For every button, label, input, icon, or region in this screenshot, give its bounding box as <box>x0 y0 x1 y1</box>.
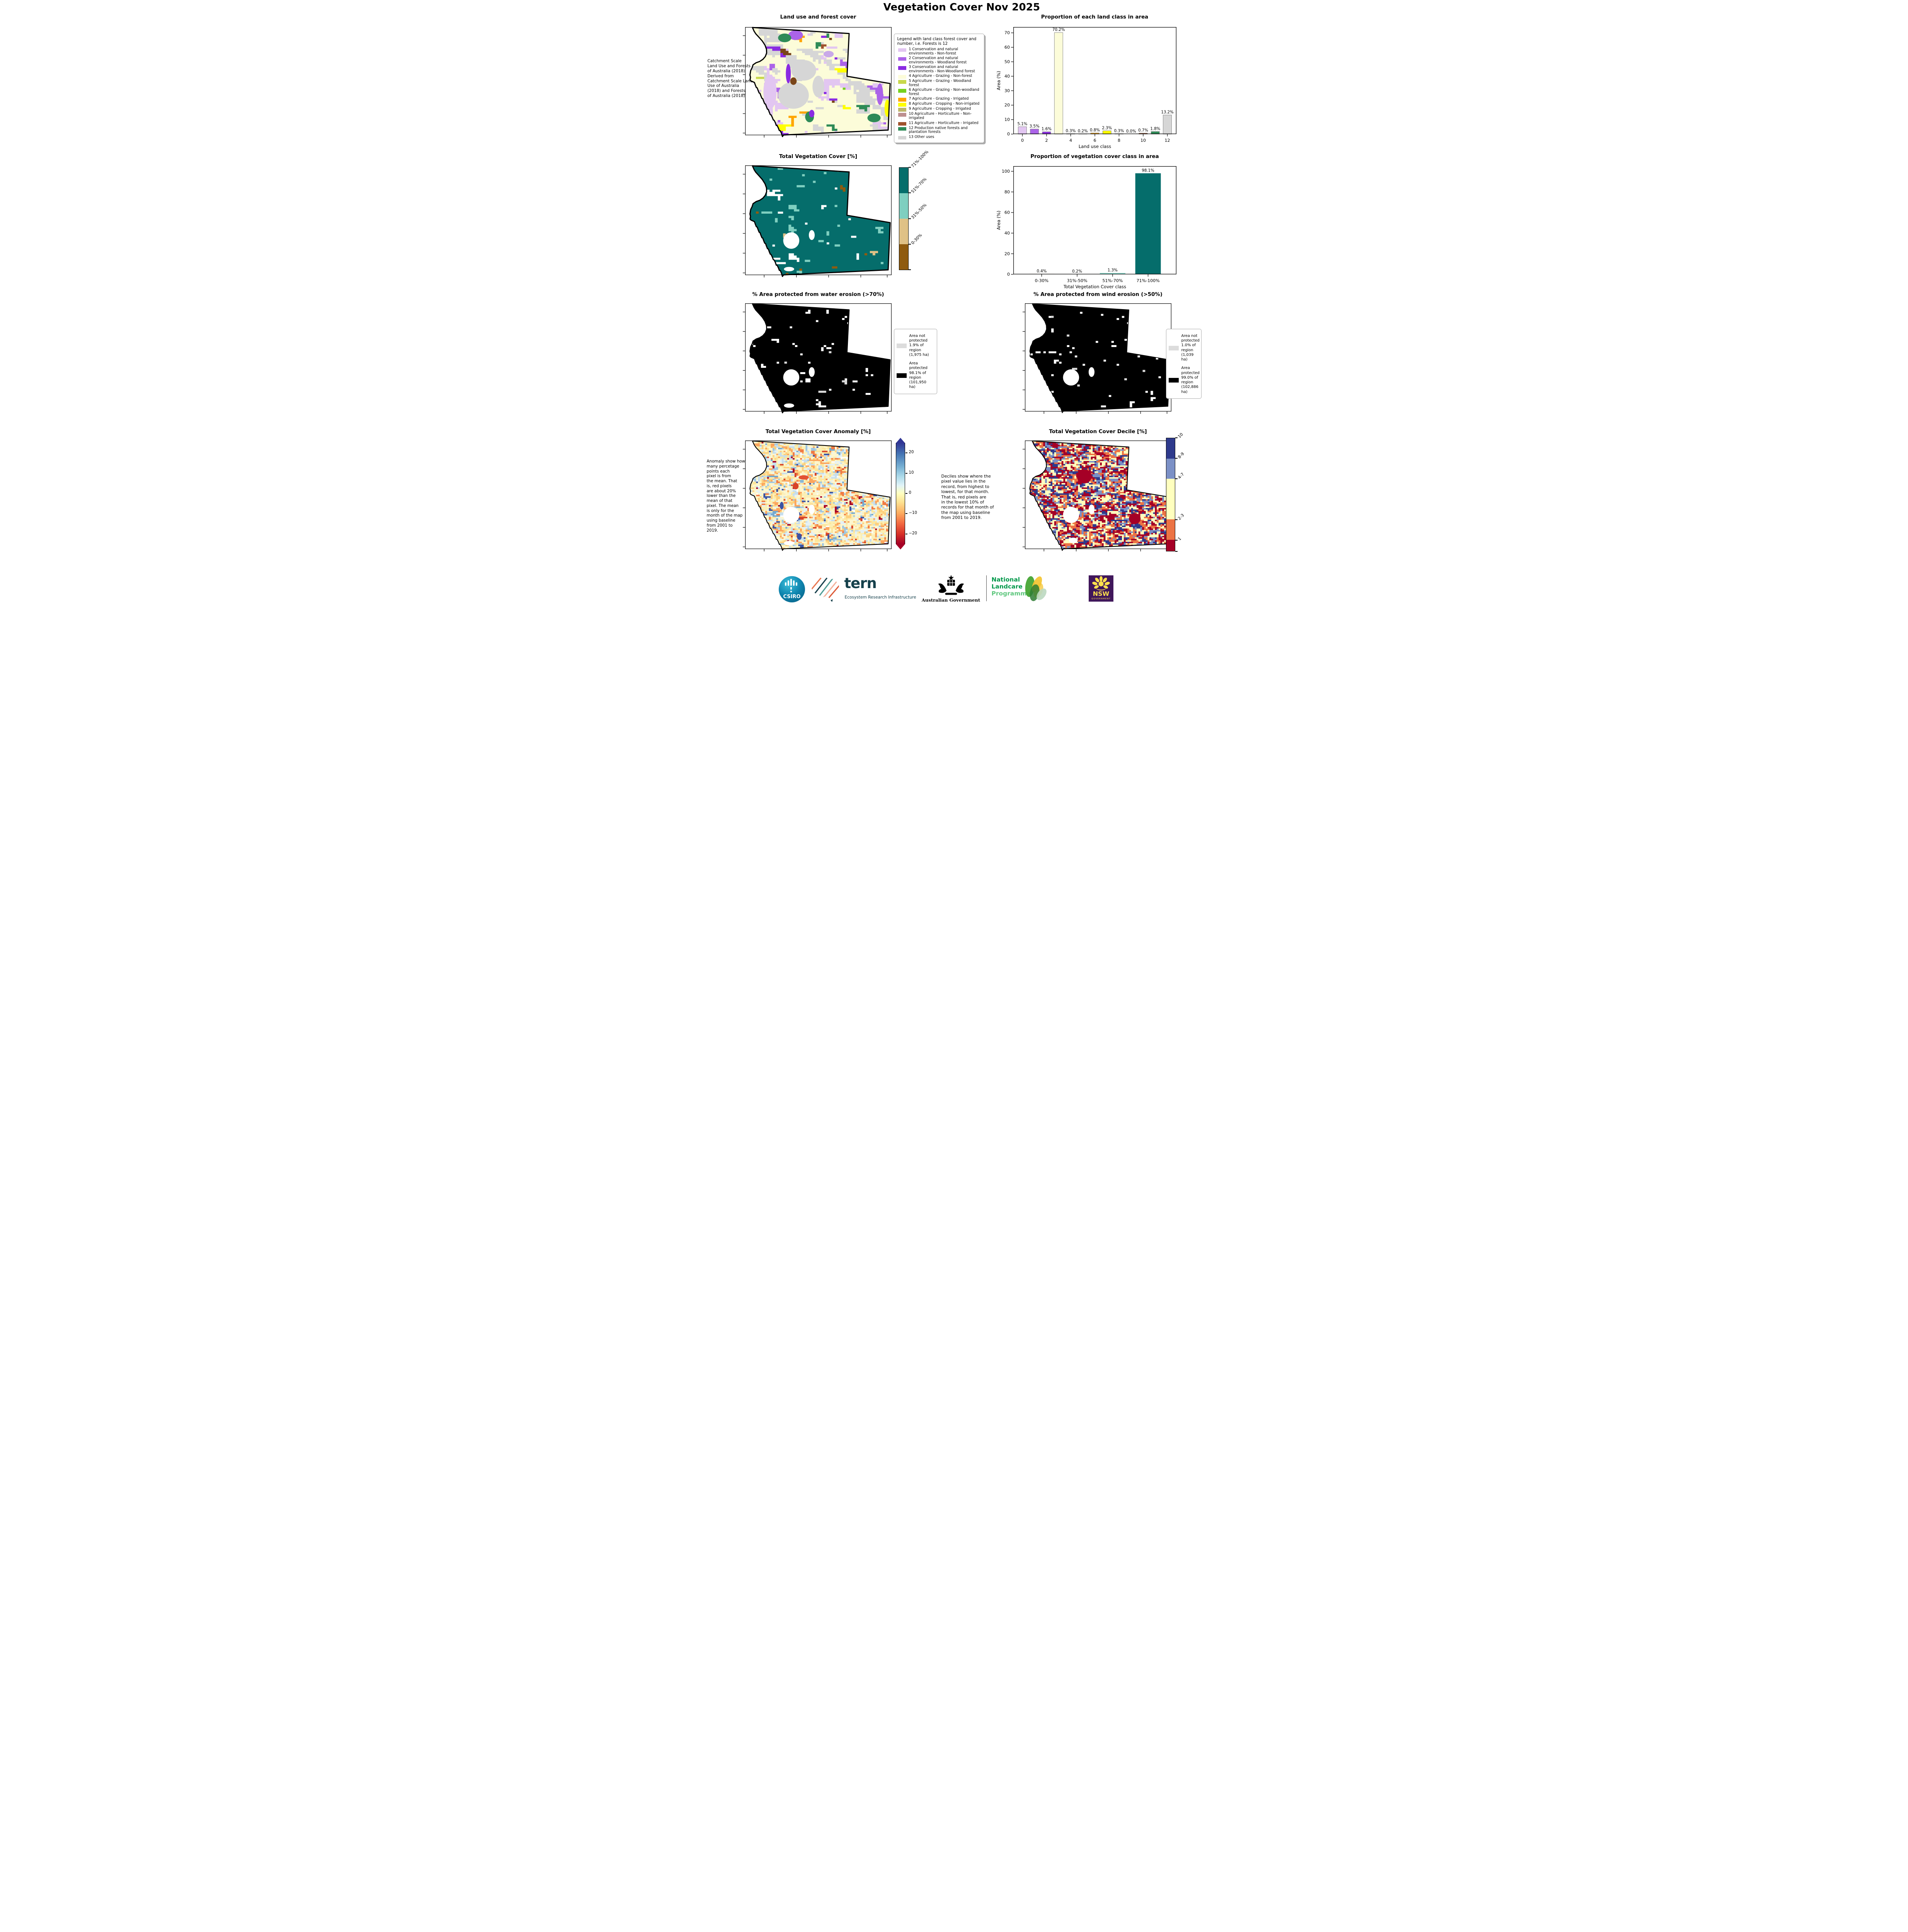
y-tick-label: 50 <box>1004 59 1010 64</box>
x-tick-label: 51%-70% <box>1102 278 1123 283</box>
protected-label: Area protected 99.0% of region (102,886 … <box>1181 366 1200 394</box>
vegcover-map-title: Total Vegetation Cover [%] <box>745 154 892 160</box>
anomaly-colorbar-top-arrow <box>896 438 905 443</box>
axes-frame <box>1013 27 1176 134</box>
y-axis-label: Area (%) <box>996 211 1001 230</box>
x-tick-label: 0 <box>1021 138 1023 143</box>
legend-swatch-13 <box>898 136 906 140</box>
anomaly-cb-tick <box>905 473 907 474</box>
decile-map-title: Total Vegetation Cover Decile [%] <box>1025 429 1171 435</box>
legend-item-4: 4 Agriculture - Grazing - Non-forest <box>897 74 981 79</box>
anomaly-map <box>745 440 892 549</box>
y-tick-label: 60 <box>1004 210 1010 215</box>
bar-value-label: 1.8% <box>1150 127 1160 131</box>
decile-cb-tick <box>1175 540 1178 541</box>
tern-tasmania <box>831 599 833 602</box>
decile-cb-tick <box>1175 437 1178 438</box>
decile-cb-label-10: 10 <box>1177 432 1184 439</box>
bar-value-label: 5.1% <box>1017 122 1027 126</box>
decile-seg-10 <box>1166 438 1175 459</box>
decile-cb-tick <box>1175 519 1178 520</box>
legend-item-1: 1 Conservation and natural environments … <box>897 48 981 56</box>
legend-swatch-7 <box>898 98 906 102</box>
x-tick-label: 6 <box>1093 138 1096 143</box>
decile-cb-label-1: 1 <box>1177 536 1182 541</box>
nsw-text: NSW <box>1093 590 1109 597</box>
anomaly-cb-tick <box>905 493 907 494</box>
decile-cb-tick <box>1175 478 1178 479</box>
bar-1 <box>1030 129 1038 134</box>
decile-seg-1 <box>1166 540 1175 551</box>
y-tick-label: 60 <box>1004 45 1010 50</box>
bar-value-label: 0.3% <box>1114 129 1124 133</box>
vegcover-cb-label-3: 0-30% <box>910 233 923 246</box>
bars-group: 5.1%3.5%1.6%70.2%0.3%0.2%0.8%2.3%0.3%0.0… <box>1017 28 1174 134</box>
not-protected-swatch <box>1169 346 1179 350</box>
x-axis-label: Land use class <box>1078 144 1111 149</box>
x-axis-label: Total Vegetation Cover class <box>1063 284 1126 289</box>
decile-cb-tick <box>1175 551 1178 552</box>
legend-label-13: 13 Other uses <box>909 135 934 139</box>
tern-wordmark: tern <box>844 575 877 592</box>
legend-item-13: 13 Other uses <box>897 135 981 140</box>
legend-label-5: 5 Agriculture - Grazing - Woodland fores… <box>909 79 981 88</box>
report-page: Vegetation Cover Nov 2025 Land use and f… <box>707 0 1202 605</box>
legend-item-2: 2 Conservation and natural environments … <box>897 56 981 65</box>
legend-label-9: 9 Agriculture - Cropping - Irrigated <box>909 107 971 111</box>
x-tick-label: 12 <box>1164 138 1170 143</box>
legend-item-11: 11 Agriculture - Horticulture - Irrigate… <box>897 121 981 126</box>
nsw-sub-text: GOVERNMENT <box>1091 598 1111 600</box>
not-protected-label: Area not protected 1.9% of region (1,975… <box>909 334 929 357</box>
bar-value-label: 98.1% <box>1142 168 1154 173</box>
bar-3 <box>1054 32 1063 134</box>
bar-value-label: 70.2% <box>1052 28 1065 32</box>
anomaly-cb-tick <box>905 534 907 534</box>
vegcover-cb-label-0: 71%-100% <box>910 150 929 168</box>
landclass-chart: 010203040506070Area (%)5.1%3.5%1.6%70.2%… <box>1013 27 1176 134</box>
legend-swatch-9 <box>898 108 906 112</box>
bar-3 <box>1135 173 1161 274</box>
landcare-leaves-icon <box>1018 573 1052 605</box>
legend-item-protected: Area protected 98.1% of region (101,950 … <box>897 361 934 389</box>
decile-cb-tick <box>1175 458 1178 459</box>
legend-label-2: 2 Conservation and natural environments … <box>909 56 981 65</box>
legend-swatch-3 <box>898 66 906 70</box>
map-pixels <box>745 303 892 412</box>
legend-swatch-10 <box>898 113 906 117</box>
decile-colorbar <box>1166 438 1175 551</box>
footer-divider <box>986 575 987 601</box>
wind-map-title: % Area protected from wind erosion (>50%… <box>1025 292 1171 298</box>
legend-item-protected: Area protected 99.0% of region (102,886 … <box>1169 366 1199 394</box>
legend-item-5: 5 Agriculture - Grazing - Woodland fores… <box>897 79 981 88</box>
legend-swatch-6 <box>898 89 906 93</box>
tern-tagline: Ecosystem Research Infrastructure <box>845 595 916 600</box>
legend-label-11: 11 Agriculture - Horticulture - Irrigate… <box>909 121 979 126</box>
bar-value-label: 1.6% <box>1042 127 1052 131</box>
bar-value-label: 0.7% <box>1138 128 1148 133</box>
decile-seg-2-3 <box>1166 519 1175 540</box>
decile-cb-label-4-7: 4-7 <box>1177 472 1185 480</box>
page-title: Vegetation Cover Nov 2025 <box>722 2 1202 13</box>
map-pixels <box>745 27 892 135</box>
map-pixels <box>745 165 892 275</box>
decile-cb-label-8-9: 8-9 <box>1177 452 1185 460</box>
decile-cb-label-2-3: 2-3 <box>1177 513 1185 521</box>
decile-seg-4-7 <box>1166 479 1175 519</box>
anomaly-cb-num-m10: −10 <box>909 511 917 515</box>
anomaly-cb-num-20: 20 <box>909 450 914 454</box>
anomaly-cb-num-0: 0 <box>909 491 911 495</box>
anomaly-cb-num-m20: −20 <box>909 531 917 536</box>
vegcover-colorbar <box>899 167 909 270</box>
x-tick-label: 0-30% <box>1035 278 1048 283</box>
x-tick-label: 71%-100% <box>1136 278 1159 283</box>
legend-item-6: 6 Agriculture - Grazing - Non-woodland f… <box>897 88 981 97</box>
bar-value-label: 0.2% <box>1072 269 1082 274</box>
y-tick-label: 40 <box>1004 231 1010 236</box>
vegcover-cb-label-2: 31%-50% <box>910 203 927 220</box>
vegcover-cb-tick <box>909 269 911 270</box>
water-erosion-map <box>745 303 892 412</box>
x-tick-label: 8 <box>1118 138 1120 143</box>
bars-group: 0.4%0.2%1.3%98.1% <box>1029 168 1161 274</box>
y-tick-label: 0 <box>1007 272 1010 277</box>
vegclass-chart: 020406080100Area (%)0.4%0.2%1.3%98.1%0-3… <box>1013 166 1176 274</box>
vegcover-cb-tick <box>909 192 911 193</box>
legend-label-10: 10 Agriculture - Horticulture - Non-irri… <box>909 112 981 121</box>
legend-item-3: 3 Conservation and natural environments … <box>897 65 981 74</box>
bar-value-label: 0.0% <box>1126 129 1136 134</box>
map-pixels <box>1025 303 1171 412</box>
y-tick-label: 20 <box>1004 103 1010 108</box>
wind-erosion-map <box>1025 303 1171 412</box>
bar-value-label: 0.8% <box>1090 128 1100 133</box>
legend-label-7: 7 Agriculture - Grazing - Irrigated <box>909 97 969 101</box>
legend-label-4: 4 Agriculture - Grazing - Non-forest <box>909 74 972 78</box>
legend-item-10: 10 Agriculture - Horticulture - Non-irri… <box>897 112 981 121</box>
x-tick-label: 31%-50% <box>1067 278 1087 283</box>
bar-value-label: 2.3% <box>1102 126 1112 130</box>
protected-label: Area protected 98.1% of region (101,950 … <box>909 361 928 389</box>
map-pixels <box>1025 440 1171 549</box>
landuse-map-title: Land use and forest cover <box>745 14 892 20</box>
legend-label-3: 3 Conservation and natural environments … <box>909 65 981 74</box>
legend-item-9: 9 Agriculture - Cropping - Irrigated <box>897 107 981 112</box>
x-tick-label: 10 <box>1140 138 1146 143</box>
decile-side-note: Deciles show where the pixel value lies … <box>941 474 998 520</box>
bar-12 <box>1163 115 1171 134</box>
anomaly-colorbar <box>896 443 905 544</box>
y-tick-label: 100 <box>1002 169 1010 174</box>
anomaly-colorbar-bottom-arrow <box>896 544 905 549</box>
landuse-map <box>745 27 892 135</box>
y-tick-label: 30 <box>1004 88 1010 93</box>
anomaly-cb-num-10: 10 <box>909 471 914 475</box>
vegcover-colorbar-seg-0-30 <box>899 244 908 270</box>
anomaly-map-title: Total Vegetation Cover Anomaly [%] <box>745 429 892 435</box>
vegcover-cb-tick <box>909 218 911 219</box>
vegcover-colorbar-seg-51-70 <box>899 193 908 219</box>
vegcover-cb-label-1: 51%-70% <box>910 177 927 194</box>
bar-value-label: 13.2% <box>1161 111 1174 115</box>
vegcover-cb-tick <box>909 167 911 168</box>
legend-label-1: 1 Conservation and natural environments … <box>909 48 981 56</box>
bar-7 <box>1103 131 1111 134</box>
legend-swatch-12 <box>898 127 906 131</box>
y-tick-label: 40 <box>1004 74 1010 79</box>
vegcover-map <box>745 165 892 275</box>
protected-swatch <box>1169 378 1179 383</box>
australian-government-text: Australian Government <box>919 597 983 603</box>
vegcover-colorbar-seg-71-100 <box>899 168 908 193</box>
vegclass-chart-title: Proportion of vegetation cover class in … <box>1013 154 1176 160</box>
decile-map <box>1025 440 1171 549</box>
landclass-chart-title: Proportion of each land class in area <box>1013 14 1176 20</box>
not-protected-swatch <box>897 344 907 348</box>
legend-item-not-protected: Area not protected 1.0% of region (1,039… <box>1169 334 1199 362</box>
not-protected-label: Area not protected 1.0% of region (1,039… <box>1181 334 1200 362</box>
y-tick-label: 0 <box>1007 132 1010 137</box>
map-pixels <box>745 440 892 549</box>
legend-swatch-2 <box>898 57 906 61</box>
legend-swatch-11 <box>898 122 906 126</box>
anomaly-cb-tick <box>905 452 907 453</box>
legend-swatch-8 <box>898 103 906 107</box>
csiro-logo: CSIRO <box>778 575 805 605</box>
anomaly-cb-tick <box>905 513 907 514</box>
y-tick-label: 20 <box>1004 251 1010 256</box>
legend-item-not-protected: Area not protected 1.9% of region (1,975… <box>897 334 934 357</box>
landuse-legend-title: Legend with land class forest cover and … <box>897 37 981 46</box>
legend-label-8: 8 Agriculture - Cropping - Non-irrigated <box>909 102 980 106</box>
bar-value-label: 1.3% <box>1107 269 1117 273</box>
x-tick-label: 4 <box>1069 138 1072 143</box>
bar-value-label: 0.4% <box>1037 269 1047 274</box>
australian-government-crest-icon <box>936 574 967 598</box>
water-erosion-legend: Area not protected 1.9% of region (1,975… <box>894 329 937 394</box>
legend-label-6: 6 Agriculture - Grazing - Non-woodland f… <box>909 88 981 97</box>
legend-item-7: 7 Agriculture - Grazing - Irrigated <box>897 97 981 102</box>
tern-scribbles <box>807 575 843 603</box>
bar-value-label: 3.5% <box>1029 124 1039 129</box>
decile-seg-8-9 <box>1166 459 1175 479</box>
y-tick-label: 10 <box>1004 117 1010 122</box>
legend-label-12: 12 Production native forests and plantat… <box>909 126 981 135</box>
legend-swatch-1 <box>898 48 906 52</box>
landuse-legend: Legend with land class forest cover and … <box>894 34 984 143</box>
legend-item-12: 12 Production native forests and plantat… <box>897 126 981 135</box>
tern-australia-icon <box>807 575 843 605</box>
bar-0 <box>1018 127 1026 134</box>
water-map-title: % Area protected from water erosion (>70… <box>745 292 892 298</box>
x-tick-label: 2 <box>1045 138 1048 143</box>
protected-swatch <box>897 373 907 378</box>
legend-swatch-4 <box>898 75 906 79</box>
vegcover-colorbar-seg-31-50 <box>899 219 908 244</box>
y-axis-label: Area (%) <box>996 71 1001 90</box>
nsw-government-logo: NSW GOVERNMENT <box>1089 575 1113 603</box>
legend-swatch-5 <box>898 80 906 84</box>
landuse-legend-items: 1 Conservation and natural environments … <box>897 48 981 140</box>
legend-item-8: 8 Agriculture - Cropping - Non-irrigated <box>897 102 981 107</box>
bar-value-label: 0.3% <box>1065 129 1076 133</box>
bar-value-label: 0.2% <box>1077 129 1088 133</box>
vegcover-cb-tick <box>909 244 911 245</box>
y-tick-label: 70 <box>1004 31 1010 36</box>
y-tick-label: 80 <box>1004 189 1010 194</box>
wind-erosion-legend: Area not protected 1.0% of region (1,039… <box>1166 329 1202 399</box>
csiro-text: CSIRO <box>783 594 800 600</box>
